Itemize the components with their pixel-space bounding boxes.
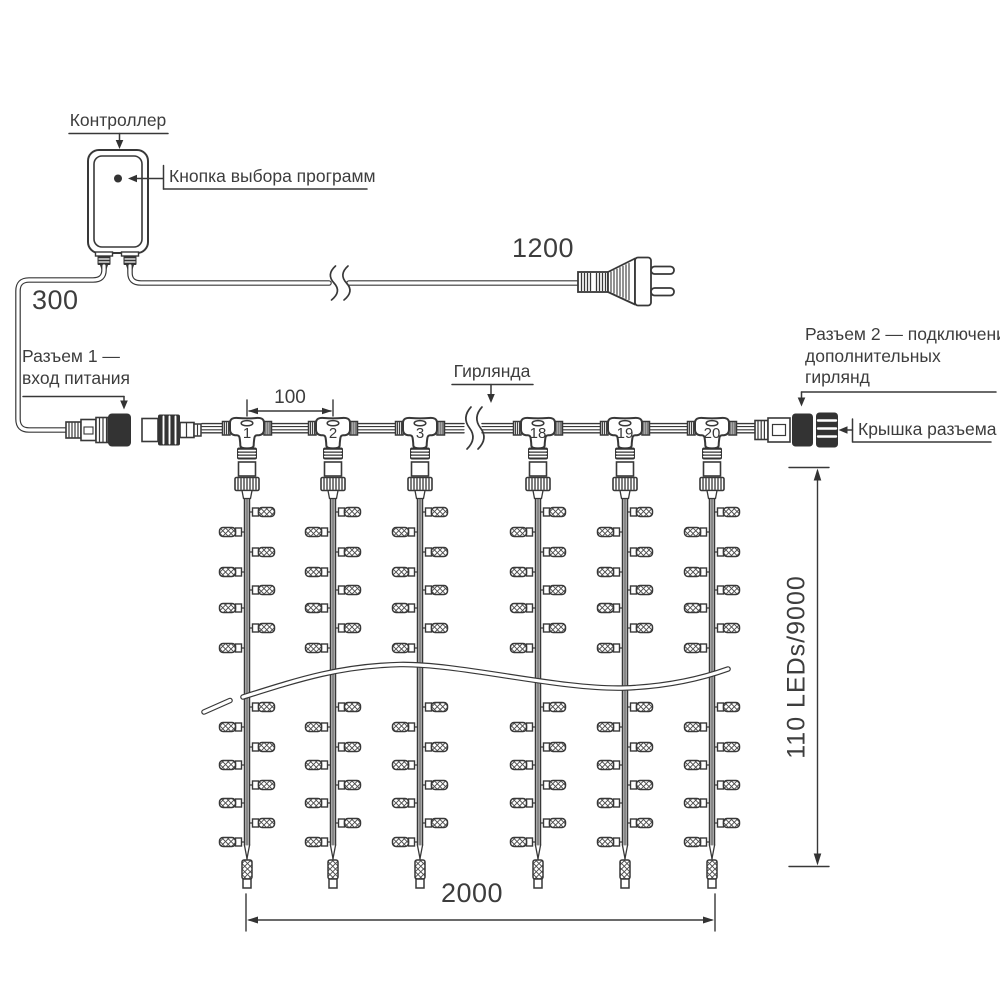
svg-text:1: 1 xyxy=(243,425,251,442)
drop-string xyxy=(220,448,275,889)
led-right xyxy=(336,508,361,517)
led-right xyxy=(423,781,448,790)
connector1-male xyxy=(66,414,131,447)
connector2-assembly xyxy=(755,413,838,448)
led-right xyxy=(250,508,275,517)
tee-junction: 2 xyxy=(309,418,358,448)
led-left xyxy=(598,723,623,732)
led-left xyxy=(685,761,710,770)
connector2-label-line1: Разъем 2 — подключение xyxy=(805,324,1000,346)
garland-label: Гирлянда xyxy=(450,361,534,383)
led-right xyxy=(715,624,740,633)
connector2-label: Разъем 2 — подключение дополнительных ги… xyxy=(805,324,1000,389)
led-right xyxy=(423,743,448,752)
chain-cable xyxy=(202,407,755,449)
led-left xyxy=(685,723,710,732)
svg-text:3: 3 xyxy=(416,425,424,442)
led-left xyxy=(685,604,710,613)
curtain-height-dimension: 110 LEDs/9000 xyxy=(783,575,812,759)
led-right xyxy=(628,703,653,712)
led-left xyxy=(220,761,245,770)
led-right xyxy=(715,743,740,752)
led-left xyxy=(306,604,331,613)
connector1-label: Разъем 1 — вход питания xyxy=(22,346,130,389)
led-left xyxy=(511,604,536,613)
led-left xyxy=(393,568,418,577)
led-right xyxy=(715,548,740,557)
garland-start-connector xyxy=(142,415,201,446)
led-right xyxy=(423,624,448,633)
led-left xyxy=(220,723,245,732)
lead-in-dimension: 300 xyxy=(32,290,79,312)
cap-label: Крышка разъема xyxy=(858,419,997,441)
led-left xyxy=(598,644,623,653)
led-right xyxy=(628,624,653,633)
tee-junction: 20 xyxy=(688,418,737,448)
led-left xyxy=(306,838,331,847)
led-right xyxy=(628,781,653,790)
led-right xyxy=(541,819,566,828)
led-left xyxy=(511,838,536,847)
led-left xyxy=(393,604,418,613)
led-left xyxy=(598,838,623,847)
led-left xyxy=(306,723,331,732)
led-left xyxy=(306,799,331,808)
led-right xyxy=(715,781,740,790)
led-right xyxy=(541,624,566,633)
tee-junction: 19 xyxy=(601,418,650,448)
tee-junction: 18 xyxy=(514,418,563,448)
led-right xyxy=(541,781,566,790)
led-left xyxy=(220,568,245,577)
led-left xyxy=(511,528,536,537)
led-right xyxy=(423,703,448,712)
led-right xyxy=(336,781,361,790)
led-right xyxy=(541,586,566,595)
led-right xyxy=(628,819,653,828)
led-right xyxy=(423,819,448,828)
led-left xyxy=(393,723,418,732)
led-left xyxy=(393,761,418,770)
connector1-label-line1: Разъем 1 — xyxy=(22,346,130,368)
drop-string xyxy=(598,448,653,889)
svg-text:20: 20 xyxy=(704,425,721,442)
led-left xyxy=(511,761,536,770)
led-left xyxy=(511,799,536,808)
diagram: 123181920 Контроллер Кнопка выбора прогр… xyxy=(0,0,1000,1000)
led-left xyxy=(393,644,418,653)
led-left xyxy=(685,568,710,577)
led-right xyxy=(628,743,653,752)
led-left xyxy=(220,644,245,653)
led-right xyxy=(250,743,275,752)
connector1-label-line2: вход питания xyxy=(22,368,130,390)
led-left xyxy=(220,799,245,808)
led-left xyxy=(685,838,710,847)
led-left xyxy=(306,568,331,577)
led-right xyxy=(628,508,653,517)
led-right xyxy=(541,743,566,752)
led-left xyxy=(220,604,245,613)
led-right xyxy=(336,703,361,712)
led-left xyxy=(511,568,536,577)
led-right xyxy=(336,624,361,633)
svg-text:18: 18 xyxy=(530,425,547,442)
led-right xyxy=(423,586,448,595)
led-left xyxy=(220,528,245,537)
diagram-linework: 123181920 xyxy=(18,134,996,932)
led-right xyxy=(250,703,275,712)
led-right xyxy=(250,548,275,557)
svg-text:19: 19 xyxy=(617,425,634,442)
led-right xyxy=(423,508,448,517)
connector2-label-line3: гирлянд xyxy=(805,367,1000,389)
led-left xyxy=(598,568,623,577)
led-right xyxy=(541,548,566,557)
led-left xyxy=(598,528,623,537)
led-right xyxy=(715,819,740,828)
drop-string xyxy=(511,448,566,889)
led-left xyxy=(685,528,710,537)
diagram-canvas: 123181920 xyxy=(0,0,1000,1000)
led-left xyxy=(598,799,623,808)
led-right xyxy=(250,781,275,790)
led-right xyxy=(715,586,740,595)
led-left xyxy=(306,644,331,653)
drop-spacing-dimension: 100 xyxy=(263,387,317,409)
led-right xyxy=(628,548,653,557)
led-right xyxy=(250,624,275,633)
led-left xyxy=(393,838,418,847)
led-right xyxy=(336,548,361,557)
program-button-label: Кнопка выбора программ xyxy=(169,166,376,188)
led-right xyxy=(715,508,740,517)
led-right xyxy=(423,548,448,557)
led-right xyxy=(715,703,740,712)
led-right xyxy=(250,819,275,828)
led-left xyxy=(598,604,623,613)
power-plug xyxy=(578,258,674,306)
led-left xyxy=(598,761,623,770)
led-left xyxy=(393,799,418,808)
led-right xyxy=(541,508,566,517)
tee-junction: 1 xyxy=(223,418,272,448)
led-right xyxy=(628,586,653,595)
led-right xyxy=(336,819,361,828)
controller-label: Контроллер xyxy=(62,110,174,132)
led-left xyxy=(511,644,536,653)
led-left xyxy=(685,644,710,653)
svg-text:2: 2 xyxy=(329,425,337,442)
power-cord-dimension: 1200 xyxy=(512,238,574,260)
led-left xyxy=(306,761,331,770)
led-left xyxy=(220,838,245,847)
led-right xyxy=(541,703,566,712)
led-left xyxy=(306,528,331,537)
controller xyxy=(88,150,148,270)
connector2-label-line2: дополнительных xyxy=(805,346,1000,368)
tee-junction: 3 xyxy=(396,418,445,448)
led-left xyxy=(393,528,418,537)
drop-string xyxy=(685,448,740,889)
led-left xyxy=(511,723,536,732)
led-right xyxy=(250,586,275,595)
led-left xyxy=(685,799,710,808)
curtain-width-dimension: 2000 xyxy=(427,883,517,905)
led-right xyxy=(336,743,361,752)
led-right xyxy=(336,586,361,595)
